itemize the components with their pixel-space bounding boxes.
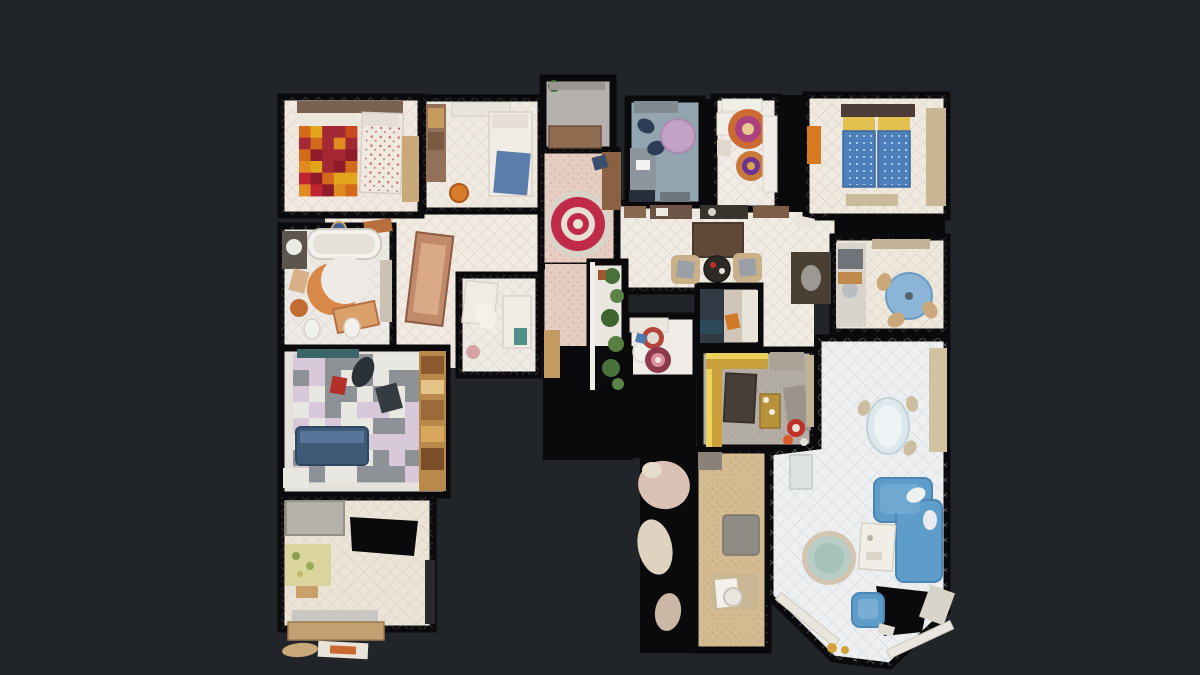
doormat-sitting	[624, 206, 646, 218]
bed-headboard	[297, 101, 403, 113]
nursery-rug-round-ring	[747, 162, 755, 170]
checkered-floor-cell	[293, 386, 309, 402]
wall-gap-nursery-bedroom	[778, 95, 806, 212]
laundry-basket-teal	[514, 328, 527, 345]
sitting-rug	[693, 223, 743, 257]
bed-patchwork-quilt-cell	[345, 184, 357, 196]
checkered-floor-cell	[405, 418, 421, 434]
wc-rug-maroon-ring	[655, 357, 661, 363]
bed-patchwork-quilt-cell	[345, 161, 357, 173]
closet-clothes	[700, 289, 724, 343]
twin-pillow	[878, 117, 910, 131]
armchair-cushion	[676, 260, 695, 279]
dining-dark-strip	[425, 560, 435, 624]
bed-patchwork-quilt-cell	[334, 161, 346, 173]
kitchen2-flower	[783, 435, 793, 445]
checkered-floor-cell	[405, 434, 421, 450]
nursery-bed	[722, 99, 762, 111]
checkered-floor-cell	[373, 450, 389, 466]
bed-patchwork-quilt-cell	[334, 173, 346, 185]
twin-bed-dots	[845, 133, 873, 185]
office-cabinet	[660, 192, 690, 202]
bed-patchwork-quilt-cell	[299, 184, 311, 196]
bed-patchwork-quilt-cell	[311, 126, 323, 138]
balcony-plant	[612, 378, 624, 390]
kitchen2-cabinet-right	[806, 355, 814, 427]
twin-bench	[846, 194, 898, 206]
balcony-plant	[610, 289, 624, 303]
toilet	[304, 319, 320, 339]
utility-couch-seat	[300, 431, 364, 443]
nursery-wardrobe	[763, 116, 777, 192]
study-bed-pillow	[492, 114, 528, 128]
checkered-floor-cell	[405, 370, 421, 386]
armchair-cushion	[738, 258, 757, 277]
sofa-pillow-white	[923, 510, 937, 530]
balcony-pot	[598, 270, 606, 280]
kitchen2-cup	[763, 397, 769, 403]
bed-patchwork-quilt-cell	[322, 184, 334, 196]
corridor-chair	[724, 588, 742, 606]
office-monitor	[629, 190, 655, 202]
checkered-floor-cell	[357, 402, 373, 418]
bed-patchwork-quilt-cell	[299, 173, 311, 185]
study-shelf-clutter	[428, 108, 444, 128]
twin-bed-dots	[880, 133, 908, 185]
checkered-floor-cell	[341, 466, 357, 482]
side-table-decor	[710, 262, 716, 268]
console-table	[753, 206, 789, 218]
closet-shelf	[742, 290, 758, 342]
checkered-floor-cell	[389, 450, 405, 466]
bath-rug-round	[290, 299, 308, 317]
office-laptop	[636, 160, 650, 170]
kitchen2-cup	[769, 409, 775, 415]
nursery-rug-swirl	[728, 109, 768, 149]
office-round-rug	[661, 119, 695, 153]
bed-patchwork-quilt-cell	[334, 184, 346, 196]
balcony-plant	[601, 309, 619, 327]
checkered-floor-cell	[389, 418, 405, 434]
kitchen2-fridge	[770, 352, 804, 370]
checkered-floor-cell	[373, 434, 389, 450]
floorplan-canvas[interactable]	[0, 0, 1200, 675]
shelf-clutter	[421, 400, 444, 420]
floor-gold-item	[827, 643, 837, 653]
bed-patchwork-quilt-cell	[311, 149, 323, 161]
floor-gold-item	[841, 646, 849, 654]
floral-pattern	[297, 571, 303, 577]
bed-patchwork-quilt-cell	[311, 184, 323, 196]
checkered-floor-cell	[373, 466, 389, 482]
coffee-table-tray	[866, 552, 882, 560]
scan-void-bedroom-twin	[835, 214, 945, 238]
scan-void-dining	[350, 517, 418, 556]
kitchen-sink	[842, 282, 858, 298]
console-items	[656, 208, 668, 216]
kitchen2-cabinet-highlight	[706, 369, 712, 447]
checkered-floor-cell	[293, 402, 309, 418]
shelf-clutter	[421, 356, 444, 374]
bed-patchwork-quilt-cell	[299, 161, 311, 173]
entry-round-rug	[545, 191, 611, 257]
bed-patchwork-quilt-cell	[299, 138, 311, 150]
floral-pattern	[306, 562, 314, 570]
bed-patchwork-quilt-cell	[322, 149, 334, 161]
checkered-floor-cell	[309, 402, 325, 418]
dining-oval-inner	[874, 405, 902, 447]
bed-patchwork-quilt-cell	[334, 126, 346, 138]
kitchen2-cabinet-highlight	[706, 353, 768, 359]
balcony-plant	[608, 336, 624, 352]
bed-patchwork-quilt-cell	[311, 138, 323, 150]
shelf-clutter	[421, 448, 444, 470]
bed-single-pillow	[363, 113, 399, 126]
twin-headboard	[841, 104, 915, 117]
living-sideboard	[790, 455, 812, 489]
coffee-table	[858, 523, 895, 571]
study-shelf-clutter	[428, 132, 444, 150]
kitchen-stove	[838, 249, 863, 269]
closet-orange	[807, 126, 821, 164]
shelf-clutter	[421, 380, 444, 394]
bed-patchwork-quilt-cell	[299, 149, 311, 161]
console-table-dark	[700, 205, 748, 219]
bed-patchwork-quilt	[299, 126, 357, 196]
checkered-floor-cell	[405, 386, 421, 402]
twin-wardrobe	[926, 108, 946, 206]
utility-wall-strip	[297, 349, 359, 358]
checkered-floor-cell	[405, 354, 421, 370]
checkered-floor-cell	[373, 418, 389, 434]
coffee-table-decor	[867, 535, 873, 541]
corridor-clutter	[698, 452, 722, 470]
laundry-basket-pink	[466, 345, 480, 359]
study-chair-orange	[450, 184, 468, 202]
entry-doormat	[549, 126, 601, 148]
bed-patchwork-quilt-cell	[322, 126, 334, 138]
bed-patchwork-quilt-cell	[345, 138, 357, 150]
kitchen-counter-items	[838, 272, 862, 284]
checkered-floor-cell	[389, 466, 405, 482]
nursery-rug-swirl-ring	[742, 123, 754, 135]
kitchen2-flowers-ring	[792, 424, 800, 432]
entry-round-rug-ring	[573, 219, 583, 229]
kitchen2-dish	[800, 438, 808, 446]
bidet	[344, 318, 360, 338]
kitchen-table-center	[905, 292, 913, 300]
outside-item-orange	[330, 645, 356, 654]
dining-marble-table	[286, 501, 344, 535]
checkered-floor-cell	[373, 370, 389, 386]
side-table-round	[704, 256, 730, 282]
checkered-floor-cell	[325, 402, 341, 418]
bed-single-floral	[362, 126, 401, 191]
floorplan-viewport[interactable]	[0, 0, 1200, 675]
bath-rug-crescent-cut	[321, 256, 369, 304]
checkered-floor-cell	[357, 466, 373, 482]
dining-radiator	[292, 610, 378, 622]
bed-patchwork-quilt-cell	[311, 173, 323, 185]
bedroom-bench	[402, 136, 419, 202]
living-cabinet-right	[929, 348, 947, 452]
bathtub-inner	[313, 234, 375, 254]
living-armchair-seat	[858, 599, 878, 619]
wc-rug-maroon	[645, 347, 671, 373]
bed-patchwork-quilt-cell	[322, 161, 334, 173]
bed-patchwork-quilt-cell	[334, 138, 346, 150]
utility-item-red	[330, 376, 348, 395]
bed-patchwork-quilt-cell	[299, 126, 311, 138]
corridor-rug	[723, 515, 759, 555]
console-vase	[708, 208, 716, 216]
floral-pattern	[292, 552, 300, 560]
nursery-rug-round	[736, 151, 766, 181]
ottoman	[801, 265, 821, 291]
landing-step	[549, 82, 605, 90]
kitchen-shelf-top	[872, 239, 930, 249]
bath-sink	[286, 239, 302, 255]
scan-patch	[642, 462, 662, 478]
bath-shelf	[380, 260, 392, 322]
bed-patchwork-quilt-cell	[345, 149, 357, 161]
kitchen2-rug	[724, 373, 756, 423]
balcony-plant	[604, 268, 620, 284]
dining-buffet	[288, 622, 384, 640]
wc-rug-red-ring	[647, 332, 659, 344]
checkered-floor-cell	[373, 354, 389, 370]
bed-patchwork-quilt-cell	[311, 161, 323, 173]
nursery-chair	[717, 140, 731, 156]
bed-patchwork-quilt-cell	[345, 173, 357, 185]
side-table-decor	[719, 268, 725, 274]
utility-corner-white	[283, 468, 309, 488]
office-shelf-top	[634, 101, 678, 113]
kitchen2-flowers	[787, 419, 805, 437]
bed-patchwork-quilt-cell	[322, 173, 334, 185]
checkered-floor-cell	[405, 450, 421, 466]
shelf-clutter	[421, 426, 444, 442]
checkered-floor-cell	[389, 354, 405, 370]
checkered-floor-cell	[309, 386, 325, 402]
checkered-floor-cell	[309, 466, 325, 482]
closet-clothes-pile	[700, 320, 722, 334]
checkered-floor-cell	[405, 466, 421, 482]
checkered-floor-cell	[405, 402, 421, 418]
checkered-floor-cell	[341, 402, 357, 418]
bed-patchwork-quilt-cell	[322, 138, 334, 150]
checkered-floor-cell	[293, 370, 309, 386]
living-round-rug	[802, 531, 856, 585]
balcony-railing	[590, 262, 595, 390]
checkered-floor-cell	[389, 434, 405, 450]
bed-pillows-master	[299, 113, 357, 126]
living-round-rug-ring	[814, 543, 844, 573]
dining-chair	[296, 586, 318, 598]
study-bed-blanket	[493, 151, 531, 196]
checkered-floor-cell	[325, 466, 341, 482]
wall-gap-study-nursery	[702, 99, 714, 206]
scan-void-center2	[630, 380, 696, 458]
twin-pillow	[843, 117, 875, 131]
entry-cabinet-low	[544, 330, 560, 378]
checkered-floor-cell	[357, 386, 373, 402]
balcony-plant	[602, 359, 620, 377]
bed-patchwork-quilt-cell	[334, 149, 346, 161]
checkered-floor-cell	[309, 370, 325, 386]
bed-patchwork-quilt-cell	[345, 126, 357, 138]
